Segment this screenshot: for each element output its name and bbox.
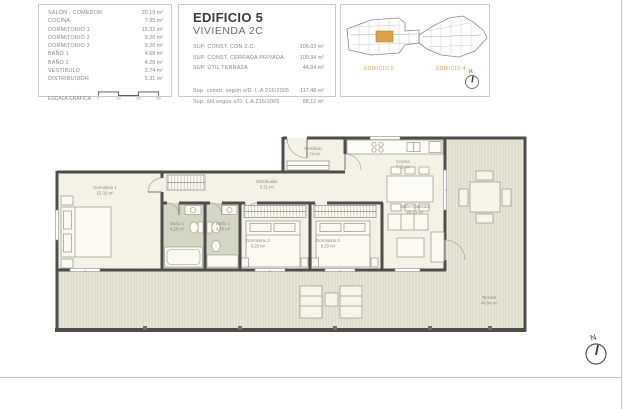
surface-label: SUP. CONST. CERRADA PRIVADA [193,55,284,61]
room-label: DORMITORIO 1 [48,27,90,33]
building-right-outline [419,16,487,57]
furniture-kitchen [347,140,443,154]
table-row: COCINA7.95 m² [48,18,163,26]
furniture-bedroom1 [61,196,111,268]
scale-tick: 2m [136,96,141,100]
terrace-bottom-floor [57,270,525,330]
key-plan: EDIFICIO 5 EDIFICIO 4 N [340,4,490,97]
legal-value: 117.48 m² [300,88,324,94]
surface-value: 44.84 m² [303,65,324,71]
surface-value: 100.34 m² [300,55,324,61]
room-area: 15.32 m² [97,191,115,196]
floor-plan: Dormitorio 1 15.32 m² Baño 2 4.28 m² Bañ… [55,110,531,336]
north-label: N [468,69,473,76]
legal-label: Sup. útil según s/D. L.A 216/2005 [193,99,280,105]
table-row: BAÑO 14.68 m² [48,51,163,59]
scale-tick: 3m [156,96,161,100]
table-row: SALÓN - COMEDOR20.19 m² [48,10,163,18]
room-label: VESTÍBULO [48,68,80,74]
north-label: N [589,332,597,342]
room-area: 20.19 m² [142,10,163,16]
room-area: 9.20 m² [251,244,266,249]
page-title: EDIFICIO 5 [193,11,324,25]
title-block: EDIFICIO 5 VIVIENDA 2C SUP. CONST. CON Z… [178,4,336,97]
table-row: DISTRIBUIDOR5.31 m² [48,76,163,84]
north-arrow-icon: N [466,69,479,89]
table-row: DORMITORIO 29.20 m² [48,35,163,43]
room-label: BAÑO 1 [48,51,69,57]
sheet-frame-line [621,0,622,409]
surface-row: SUP. CONST. CON Z.C.106.03 m² [193,44,324,55]
room-area: 4.28 m² [145,60,163,66]
scale-bar: 0 1m 2m 3m [97,87,163,102]
plan-sheet: SALÓN - COMEDOR20.19 m² COCINA7.95 m² DO… [0,0,630,409]
room-label: DORMITORIO 3 [48,43,90,49]
room-label: DORMITORIO 2 [48,35,90,41]
room-area: 2.74 m² [145,68,163,74]
key-plan-drawing: EDIFICIO 5 EDIFICIO 4 N [341,5,489,96]
room-name: Dormitorio 3 [316,238,340,243]
room-name: Vestíbulo [304,146,322,151]
room-area: 5.31 m² [145,76,163,82]
room-name: Dormitorio 2 [246,238,270,243]
room-label: COCINA [48,18,70,24]
room-area: 9.20 m² [321,244,336,249]
room-area: 5.31 m² [260,185,275,190]
area-table: SALÓN - COMEDOR20.19 m² COCINA7.95 m² DO… [38,4,172,97]
room-name: Salón-Comedor [400,204,431,209]
room-area: 4.28 m² [170,227,185,232]
surface-row: SUP. CONST. CERRADA PRIVADA100.34 m² [193,55,324,66]
room-area: 7.95 m² [145,18,163,24]
room-area: 9.20 m² [145,43,163,49]
legal-row: Sup. útil según s/D. L.A 216/200588.12 m… [193,99,324,110]
scale-tick: 0 [98,96,100,100]
sheet-frame-line [0,377,622,378]
surface-label: SUP. ÚTIL TERRAZA [193,65,248,71]
surface-row: SUP. ÚTIL TERRAZA44.84 m² [193,65,324,76]
legal-label: Sup. constr. según s/D. L.A 216/2005 [193,88,289,94]
north-arrow-icon: N [574,326,622,376]
room-area: 9.20 m² [145,35,163,41]
legal-value: 88.12 m² [303,99,324,105]
building-left-label: EDIFICIO 5 [364,66,394,72]
surface-label: SUP. CONST. CON Z.C. [193,44,255,50]
room-name: Dormitorio 1 [93,185,117,190]
highlighted-unit [376,31,393,42]
room-area: 15.32 m² [142,27,163,33]
room-area: 4.68 m² [216,227,231,232]
room-label: SALÓN - COMEDOR [48,10,102,16]
room-area: 4.68 m² [145,51,163,57]
table-row: VESTÍBULO2.74 m² [48,68,163,76]
building-right-label: EDIFICIO 4 [436,66,466,72]
room-area: 7.95 m² [396,165,411,170]
table-row: BAÑO 24.28 m² [48,60,163,68]
room-area: 44.84 m² [481,301,499,306]
room-label: DISTRIBUIDOR [48,76,89,82]
legal-row: Sup. constr. según s/D. L.A 216/2005117.… [193,88,324,99]
room-name: Cocina [396,159,410,164]
scale-label: ESCALA GRÁFICA [48,96,91,102]
room-name: Baño 2 [170,221,184,226]
room-name: Distribuidor [256,179,278,184]
room-area: 2.74 m² [306,152,321,157]
surface-value: 106.03 m² [300,44,324,50]
table-row: DORMITORIO 115.32 m² [48,27,163,35]
floor-plan-drawing: Dormitorio 1 15.32 m² Baño 2 4.28 m² Bañ… [55,110,531,336]
scale-tick: 1m [116,96,121,100]
graphic-scale: ESCALA GRÁFICA 0 1m 2m 3m [48,87,163,102]
room-name: Terraza [482,295,497,300]
room-label: BAÑO 2 [48,60,69,66]
room-name: Baño 1 [216,221,230,226]
room-area: 20.19 m² [407,210,425,215]
page-subtitle: VIVIENDA 2C [193,25,324,37]
